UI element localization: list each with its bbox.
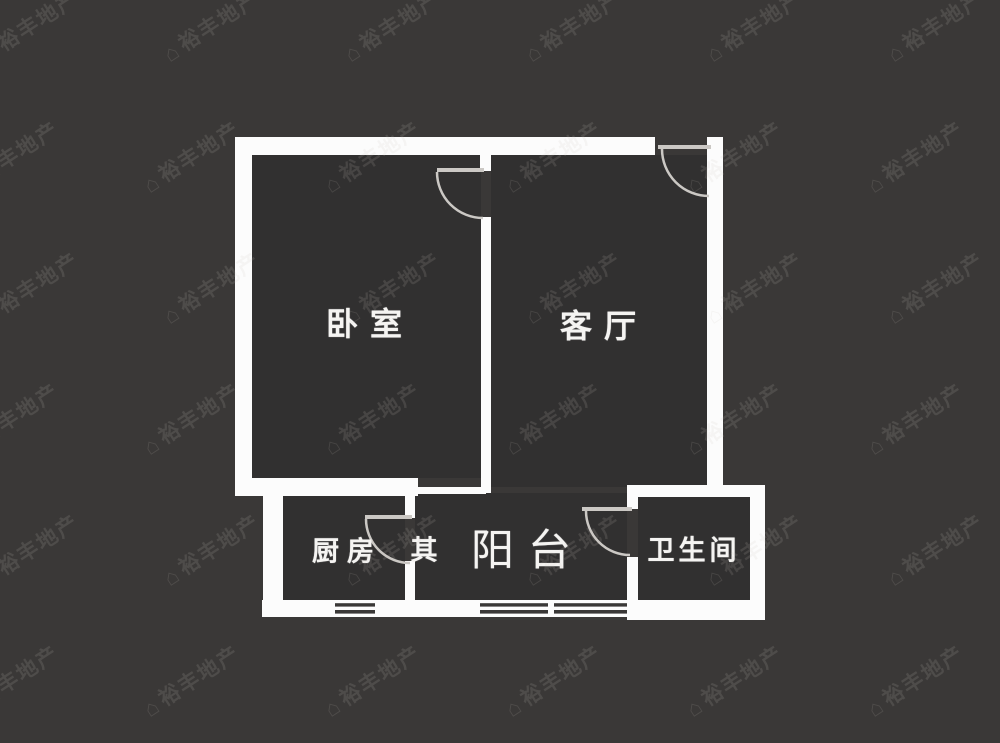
balcony-window-mullion — [548, 600, 554, 617]
kitchen-left-wall — [263, 494, 283, 617]
room-label-bathroom: 卫生间 — [648, 529, 741, 568]
bathroom-right-wall — [750, 485, 765, 620]
entrance-door-panel — [658, 145, 711, 149]
bathroom-bottom-wall — [627, 600, 765, 620]
bottom-wall-left — [262, 600, 335, 617]
bedroom-bottom-wall — [235, 478, 418, 496]
bottom-wall-middle — [375, 600, 480, 617]
bedroom-door-panel — [437, 168, 484, 172]
room-label-kitchen: 厨房 — [312, 530, 382, 569]
floor-plan: 卧室 客厅 厨房 其 阳台 卫生间 ⌂裕丰地产⌂裕丰地产⌂裕丰地产⌂裕丰地产⌂裕… — [0, 0, 1000, 743]
kitchen-right-wall-upper — [405, 494, 415, 518]
kitchen-window — [335, 600, 375, 617]
bedroom-living-wall — [481, 217, 491, 493]
room-label-living-room: 客厅 — [560, 301, 648, 347]
room-label-bedroom: 卧室 — [326, 299, 414, 345]
left-wall — [235, 137, 252, 496]
room-label-other: 其 — [411, 529, 438, 568]
room-label-balcony: 阳台 — [471, 516, 585, 578]
bathroom-left-wall-lower — [627, 557, 638, 617]
bathroom-top-wall — [627, 485, 765, 497]
bathroom-door-panel — [582, 507, 632, 511]
balcony-window — [480, 600, 627, 617]
kitchen-door-panel — [365, 515, 412, 519]
living-balcony-wall — [410, 487, 486, 494]
top-wall — [235, 137, 655, 155]
floor-plan-walls — [0, 0, 1000, 743]
right-wall — [707, 137, 723, 490]
